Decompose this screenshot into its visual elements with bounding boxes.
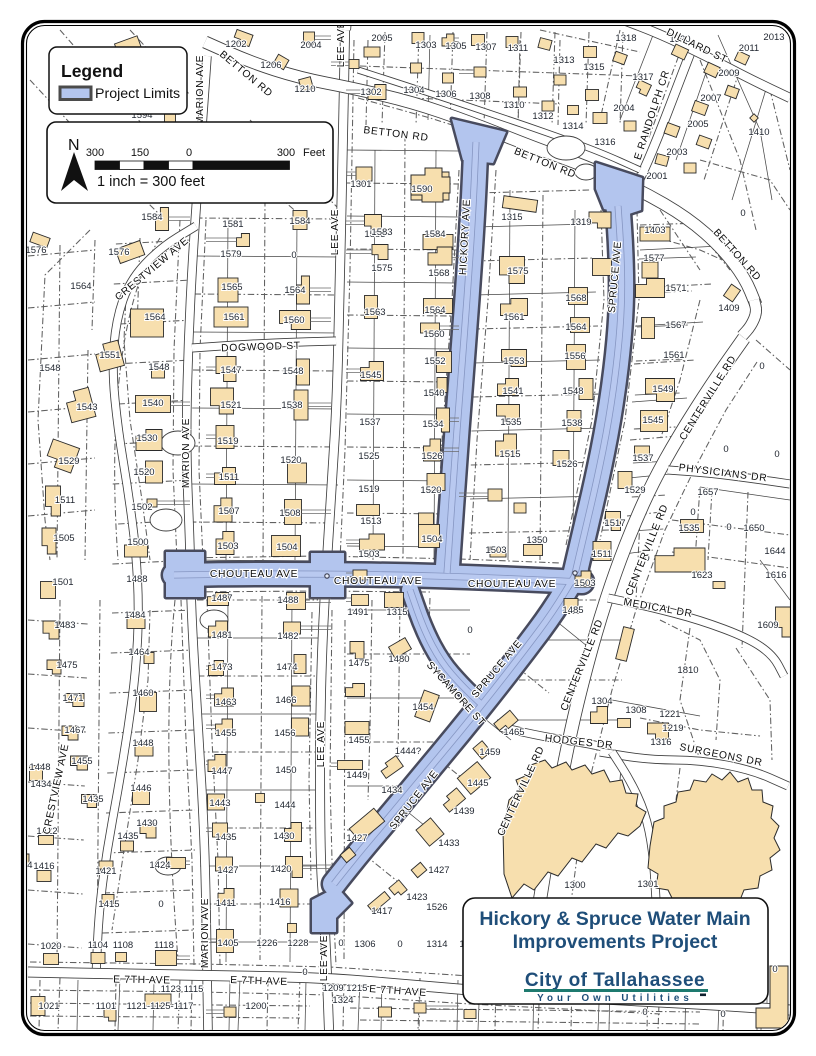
svg-text:1483: 1483	[54, 620, 75, 631]
svg-text:1316: 1316	[650, 737, 671, 748]
svg-text:1563: 1563	[364, 307, 385, 318]
svg-text:1464: 1464	[128, 647, 149, 658]
svg-text:1644: 1644	[764, 546, 785, 557]
svg-text:1504: 1504	[276, 542, 297, 553]
svg-text:Feet: Feet	[303, 147, 325, 159]
svg-text:1445: 1445	[467, 778, 488, 789]
svg-text:1200: 1200	[245, 1001, 266, 1012]
svg-text:1511: 1511	[219, 472, 239, 483]
svg-text:Your Own Utilities: Your Own Utilities	[537, 993, 693, 1004]
svg-text:300: 300	[86, 147, 104, 159]
svg-text:1444: 1444	[274, 800, 295, 811]
svg-text:2004: 2004	[613, 103, 634, 114]
svg-text:1552: 1552	[424, 356, 445, 367]
svg-text:1300: 1300	[564, 880, 585, 891]
svg-text:0: 0	[720, 1009, 725, 1020]
svg-text:1561: 1561	[223, 312, 244, 323]
svg-text:1219: 1219	[662, 723, 683, 734]
svg-text:1405: 1405	[217, 938, 238, 949]
svg-text:1508: 1508	[279, 508, 300, 519]
svg-text:1537: 1537	[632, 453, 653, 464]
svg-text:1481: 1481	[211, 630, 232, 641]
svg-text:1488: 1488	[277, 595, 298, 606]
svg-text:1548: 1548	[39, 363, 60, 374]
svg-text:1439: 1439	[453, 806, 474, 817]
svg-text:2009: 2009	[718, 68, 739, 79]
svg-text:1435: 1435	[82, 794, 103, 805]
svg-text:0: 0	[302, 967, 307, 978]
svg-text:1448: 1448	[132, 738, 153, 749]
svg-text:0: 0	[690, 507, 695, 518]
svg-text:1564: 1564	[144, 312, 165, 323]
svg-text:1210: 1210	[294, 84, 315, 95]
svg-text:1519: 1519	[217, 436, 238, 447]
svg-text:1454: 1454	[412, 702, 433, 713]
svg-text:1609: 1609	[757, 620, 778, 631]
svg-text:1121-1125-1117: 1121-1125-1117	[127, 1001, 194, 1012]
svg-text:1560: 1560	[423, 329, 444, 340]
svg-text:1543: 1543	[76, 402, 97, 413]
svg-text:1564: 1564	[424, 305, 445, 316]
svg-text:1108: 1108	[113, 940, 133, 951]
svg-text:1500: 1500	[127, 537, 148, 548]
svg-text:1324: 1324	[332, 995, 353, 1006]
svg-text:1515: 1515	[499, 449, 520, 460]
svg-text:1312: 1312	[532, 111, 553, 122]
svg-text:1519: 1519	[358, 484, 379, 495]
svg-text:1583: 1583	[371, 227, 392, 238]
svg-text:0: 0	[723, 444, 728, 455]
svg-text:1444?: 1444?	[395, 746, 421, 757]
svg-text:1575: 1575	[507, 266, 528, 277]
svg-text:1303: 1303	[415, 40, 436, 51]
svg-text:1480: 1480	[388, 654, 409, 665]
svg-text:1487: 1487	[211, 593, 232, 604]
svg-text:1564: 1564	[284, 285, 305, 296]
svg-text:1581: 1581	[222, 219, 243, 230]
svg-text:E 7TH AVE: E 7TH AVE	[113, 974, 171, 986]
svg-text:N: N	[68, 137, 80, 154]
svg-text:1202: 1202	[225, 39, 246, 50]
svg-text:1318: 1318	[615, 33, 636, 44]
svg-text:1650: 1650	[743, 523, 764, 534]
svg-text:1307: 1307	[475, 42, 496, 53]
svg-text:1545: 1545	[642, 415, 663, 426]
svg-text:1485: 1485	[562, 605, 583, 616]
svg-text:1314: 1314	[426, 939, 447, 950]
svg-text:1350: 1350	[526, 535, 547, 546]
svg-text:Legend: Legend	[61, 61, 123, 81]
svg-text:1434: 1434	[30, 779, 51, 790]
svg-text:1547: 1547	[220, 365, 241, 376]
svg-text:1564: 1564	[70, 281, 91, 292]
svg-text:0: 0	[774, 449, 779, 460]
svg-text:1403: 1403	[644, 225, 665, 236]
svg-text:1503: 1503	[217, 541, 238, 552]
svg-text:1535: 1535	[678, 523, 699, 534]
svg-text:LEE AVE: LEE AVE	[319, 935, 330, 982]
svg-text:E 7TH AVE: E 7TH AVE	[230, 975, 288, 988]
svg-text:1311: 1311	[508, 43, 528, 54]
svg-text:1584: 1584	[289, 216, 310, 227]
svg-text:1504: 1504	[421, 534, 442, 545]
svg-text:1529: 1529	[624, 485, 645, 496]
svg-text:1616: 1616	[765, 570, 786, 581]
svg-text:CHOUTEAU AVE: CHOUTEAU AVE	[334, 576, 422, 587]
svg-text:1315: 1315	[583, 62, 604, 73]
svg-text:1548: 1548	[148, 362, 169, 373]
svg-text:1409: 1409	[718, 303, 739, 314]
svg-text:0: 0	[740, 208, 745, 219]
svg-text:1456: 1456	[274, 728, 295, 739]
svg-text:1471: 1471	[62, 693, 83, 704]
svg-text:1548: 1548	[562, 386, 583, 397]
svg-text:City of Tallahassee: City of Tallahassee	[525, 970, 705, 991]
svg-text:MARION AVE: MARION AVE	[200, 898, 211, 968]
svg-text:0: 0	[467, 625, 472, 636]
svg-text:1104: 1104	[88, 940, 108, 951]
svg-text:1551: 1551	[99, 350, 120, 361]
svg-text:MARION AVE: MARION AVE	[195, 55, 206, 125]
svg-text:1503: 1503	[485, 545, 506, 556]
svg-text:1475: 1475	[56, 660, 77, 671]
svg-text:0: 0	[186, 147, 192, 159]
svg-text:1450: 1450	[275, 765, 296, 776]
svg-text:1455: 1455	[348, 735, 369, 746]
svg-text:1538: 1538	[281, 400, 302, 411]
svg-text:1520: 1520	[133, 467, 154, 478]
svg-text:1221: 1221	[659, 709, 680, 720]
svg-text:1317: 1317	[632, 72, 653, 83]
svg-text:1584: 1584	[141, 212, 162, 223]
svg-text:1529: 1529	[58, 456, 79, 467]
svg-text:1503: 1503	[358, 549, 379, 560]
svg-text:1467: 1467	[64, 725, 85, 736]
svg-text:1420: 1420	[270, 864, 291, 875]
svg-text:1545: 1545	[360, 370, 381, 381]
svg-text:1423: 1423	[406, 892, 427, 903]
svg-text:1534: 1534	[422, 419, 443, 430]
svg-text:LEE AVE: LEE AVE	[336, 21, 347, 68]
svg-text:1475: 1475	[348, 658, 369, 669]
svg-text:1576: 1576	[25, 245, 46, 256]
svg-text:1415: 1415	[98, 899, 119, 910]
svg-text:2013: 2013	[763, 32, 784, 43]
svg-text:1410: 1410	[748, 127, 769, 138]
svg-text:1455: 1455	[71, 756, 92, 767]
svg-text:1526: 1526	[421, 451, 442, 462]
svg-text:2007: 2007	[700, 93, 721, 104]
svg-text:1301: 1301	[350, 179, 371, 190]
svg-text:1505: 1505	[53, 533, 74, 544]
svg-text:1319: 1319	[570, 217, 591, 228]
svg-text:1623: 1623	[691, 570, 712, 581]
svg-text:1424: 1424	[149, 860, 170, 871]
svg-text:1565: 1565	[221, 282, 242, 293]
svg-text:1491: 1491	[347, 607, 368, 618]
svg-text:1537: 1537	[359, 417, 380, 428]
svg-text:0: 0	[158, 899, 163, 910]
svg-text:1568: 1568	[428, 268, 449, 279]
svg-text:0: 0	[772, 964, 777, 975]
svg-text:1302: 1302	[360, 87, 381, 98]
svg-text:1301: 1301	[637, 879, 658, 890]
svg-text:Project Limits: Project Limits	[95, 86, 180, 102]
svg-text:1549: 1549	[652, 384, 673, 395]
svg-text:1313: 1313	[553, 55, 574, 66]
svg-text:2011: 2011	[739, 43, 759, 54]
svg-text:LEE AVE: LEE AVE	[316, 721, 327, 768]
svg-text:1577: 1577	[643, 253, 664, 264]
svg-text:1427: 1427	[428, 865, 449, 876]
svg-text:2004: 2004	[300, 40, 321, 51]
svg-text:1465: 1465	[503, 727, 524, 738]
svg-text:1488: 1488	[126, 574, 147, 585]
svg-text:1306: 1306	[435, 89, 456, 100]
svg-text:1568: 1568	[565, 293, 586, 304]
svg-text:1435: 1435	[215, 832, 236, 843]
svg-text:300: 300	[277, 147, 295, 159]
svg-text:1502: 1502	[131, 502, 152, 513]
svg-text:1540: 1540	[142, 398, 163, 409]
svg-text:1561: 1561	[503, 312, 524, 323]
svg-text:1535: 1535	[500, 417, 521, 428]
svg-text:0: 0	[759, 361, 764, 372]
svg-text:1228: 1228	[287, 938, 308, 949]
svg-text:1315: 1315	[501, 212, 522, 223]
svg-text:1460: 1460	[132, 688, 153, 699]
svg-text:1473: 1473	[211, 662, 232, 673]
svg-text:Hickory & Spruce Water Main: Hickory & Spruce Water Main	[479, 908, 750, 930]
svg-text:1430: 1430	[136, 818, 157, 829]
svg-text:2005: 2005	[371, 33, 392, 44]
svg-text:0: 0	[397, 939, 402, 950]
svg-text:1463: 1463	[215, 697, 236, 708]
svg-text:1526: 1526	[556, 459, 577, 470]
svg-text:1526: 1526	[426, 902, 447, 913]
svg-text:1306: 1306	[354, 939, 375, 950]
svg-text:1443: 1443	[209, 798, 230, 809]
svg-text:1448: 1448	[29, 762, 50, 773]
svg-text:1511: 1511	[592, 549, 612, 560]
svg-text:1541: 1541	[502, 386, 523, 397]
svg-text:1308: 1308	[469, 91, 490, 102]
svg-text:CHOUTEAU AVE: CHOUTEAU AVE	[468, 579, 556, 590]
svg-text:0: 0	[726, 522, 731, 533]
svg-text:1525: 1525	[358, 451, 379, 462]
svg-text:CHOUTEAU AVE: CHOUTEAU AVE	[210, 569, 298, 580]
svg-text:1435: 1435	[117, 831, 138, 842]
svg-text:1810: 1810	[677, 665, 698, 676]
svg-text:1226: 1226	[256, 938, 277, 949]
svg-text:1118: 1118	[154, 940, 174, 951]
svg-text:1564: 1564	[565, 322, 586, 333]
svg-text:1560: 1560	[283, 315, 304, 326]
svg-text:1584: 1584	[424, 229, 445, 240]
svg-text:1571: 1571	[665, 283, 686, 294]
svg-text:2003: 2003	[666, 147, 687, 158]
svg-text:1548: 1548	[282, 366, 303, 377]
svg-text:1021: 1021	[38, 1001, 59, 1012]
svg-text:0: 0	[338, 938, 343, 949]
svg-text:1482: 1482	[277, 631, 298, 642]
svg-text:1209 1215: 1209 1215	[323, 983, 368, 994]
svg-text:1517: 1517	[604, 518, 625, 529]
svg-text:1503: 1503	[574, 578, 595, 589]
svg-text:1308: 1308	[625, 705, 646, 716]
svg-text:1101: 1101	[96, 1001, 116, 1012]
svg-text:1567: 1567	[665, 320, 686, 331]
svg-text:1304: 1304	[403, 85, 424, 96]
svg-text:1484: 1484	[124, 610, 145, 621]
svg-text:MARION AVE: MARION AVE	[181, 418, 192, 488]
svg-text:1447: 1447	[211, 766, 232, 777]
svg-text:1 inch = 300 feet: 1 inch = 300 feet	[97, 174, 205, 190]
svg-text:1459: 1459	[479, 747, 500, 758]
svg-text:1511: 1511	[55, 495, 75, 506]
svg-text:Improvements Project: Improvements Project	[513, 931, 718, 953]
svg-text:1427: 1427	[217, 865, 238, 876]
svg-text:1434: 1434	[381, 785, 402, 796]
svg-text:1020: 1020	[40, 941, 61, 952]
svg-text:1315: 1315	[386, 607, 407, 618]
svg-text:1501: 1501	[52, 577, 73, 588]
svg-text:1530: 1530	[136, 433, 157, 444]
svg-text:1411: 1411	[216, 898, 236, 909]
svg-text:1561: 1561	[663, 350, 684, 361]
svg-text:1455: 1455	[215, 728, 236, 739]
svg-text:2005: 2005	[687, 119, 708, 130]
svg-text:1513: 1513	[360, 516, 381, 527]
svg-text:150: 150	[131, 147, 149, 159]
svg-text:LEE AVE: LEE AVE	[330, 209, 341, 256]
svg-text:1304: 1304	[591, 696, 612, 707]
svg-text:1556: 1556	[564, 351, 585, 362]
svg-text:0: 0	[642, 1007, 647, 1018]
svg-text:1579: 1579	[220, 249, 241, 260]
svg-text:1316: 1316	[594, 137, 615, 148]
svg-text:1538: 1538	[561, 418, 582, 429]
svg-text:1474: 1474	[276, 662, 297, 673]
svg-text:1433: 1433	[438, 838, 459, 849]
svg-text:1421: 1421	[95, 866, 116, 877]
svg-text:1446: 1446	[130, 783, 151, 794]
svg-text:1466: 1466	[275, 695, 296, 706]
svg-text:1575: 1575	[371, 263, 392, 274]
svg-text:1520: 1520	[280, 455, 301, 466]
svg-text:1305: 1305	[445, 41, 466, 52]
svg-text:1590: 1590	[411, 184, 432, 195]
svg-text:1540: 1540	[423, 388, 444, 399]
svg-text:1310: 1310	[503, 100, 524, 111]
svg-text:1521: 1521	[220, 400, 241, 411]
svg-text:0: 0	[291, 250, 296, 261]
svg-text:1427: 1427	[346, 833, 367, 844]
svg-text:1416: 1416	[33, 861, 54, 872]
svg-text:2001: 2001	[646, 171, 667, 182]
svg-text:1416: 1416	[269, 897, 290, 908]
svg-text:1417: 1417	[371, 906, 392, 917]
svg-text:1314: 1314	[562, 121, 583, 132]
svg-text:1657: 1657	[697, 487, 718, 498]
svg-text:1553: 1553	[503, 356, 524, 367]
svg-text:1430: 1430	[273, 831, 294, 842]
svg-text:1449: 1449	[346, 770, 367, 781]
svg-text:1206: 1206	[260, 60, 281, 71]
svg-text:1576: 1576	[108, 247, 129, 258]
svg-text:1507: 1507	[218, 506, 239, 517]
svg-text:1520: 1520	[420, 485, 441, 496]
